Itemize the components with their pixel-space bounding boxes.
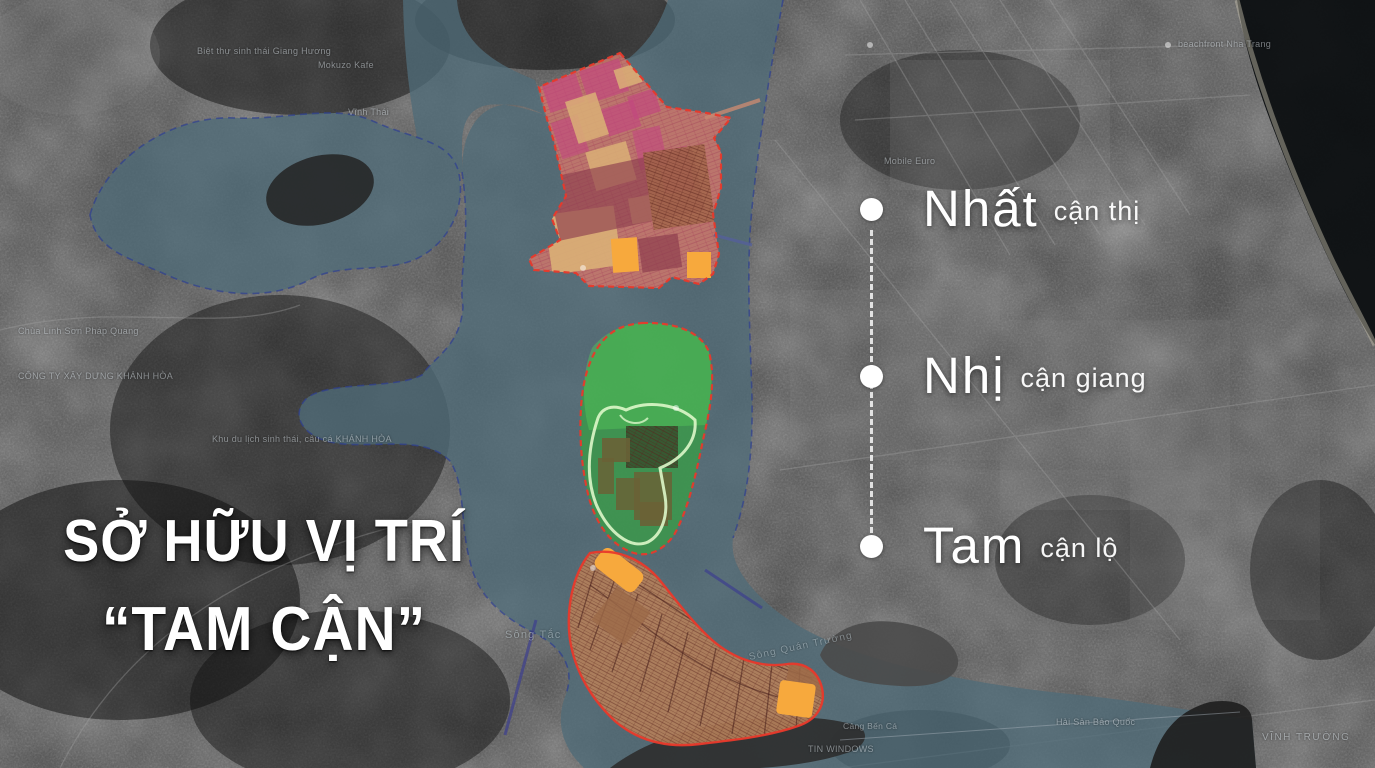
map-label-hai-san-bao-quoc: Hải Sản Bảo Quốc — [1056, 717, 1135, 727]
benefit-detail: cận thị — [1054, 196, 1141, 233]
benefit-rank: Nhất — [923, 185, 1039, 233]
map-label-mokuzo-kafe: Mokuzo Kafe — [318, 60, 374, 70]
map-label-giang-huong: Biệt thự sinh thái Giang Hương — [197, 46, 331, 56]
map-label-song-tac: Sông Tắc — [505, 629, 561, 641]
benefit-item-3: Tam cận lộ — [860, 522, 1118, 570]
headline-line2: “TAM CẬN” — [34, 599, 494, 661]
benefit-rank: Tam — [923, 522, 1025, 570]
map-label-vinh-thai: Vĩnh Thái — [348, 107, 389, 117]
map-label-mobile-euro: Mobile Euro — [884, 156, 935, 166]
slide: Biệt thự sinh thái Giang Hương Mokuzo Ka… — [0, 0, 1375, 768]
headline: SỞ HỮU VỊ TRÍ “TAM CẬN” — [34, 512, 494, 661]
benefit-detail: cận giang — [1021, 363, 1147, 400]
map-label-khu-du-lich: Khu du lịch sinh thái, câu cá KHÁNH HÒA — [212, 434, 392, 444]
map-label-beachfront: beachfront Nha Trang — [1178, 39, 1271, 49]
bullet-dot — [860, 198, 883, 221]
headline-line1: SỞ HỮU VỊ TRÍ — [34, 512, 494, 571]
map-label-cong-ty-xay-dung: CÔNG TY XÂY DỰNG KHÁNH HÒA — [18, 371, 173, 381]
benefit-item-1: Nhất cận thị — [860, 185, 1140, 233]
map-label-cang-ben-ca: Cảng Bến Cá — [843, 721, 897, 731]
map-label-chua-linh-son: Chùa Linh Sơn Pháp Quang — [18, 326, 139, 336]
benefit-detail: cận lộ — [1040, 533, 1118, 570]
map-label-vinh-truong: VĨNH TRƯỜNG — [1262, 732, 1350, 743]
benefit-rank: Nhị — [923, 352, 1006, 400]
benefit-item-2: Nhị cận giang — [860, 352, 1147, 400]
bullet-dot — [860, 365, 883, 388]
bullet-dot — [860, 535, 883, 558]
map-label-tin-windows: TIN WINDOWS — [808, 744, 874, 754]
